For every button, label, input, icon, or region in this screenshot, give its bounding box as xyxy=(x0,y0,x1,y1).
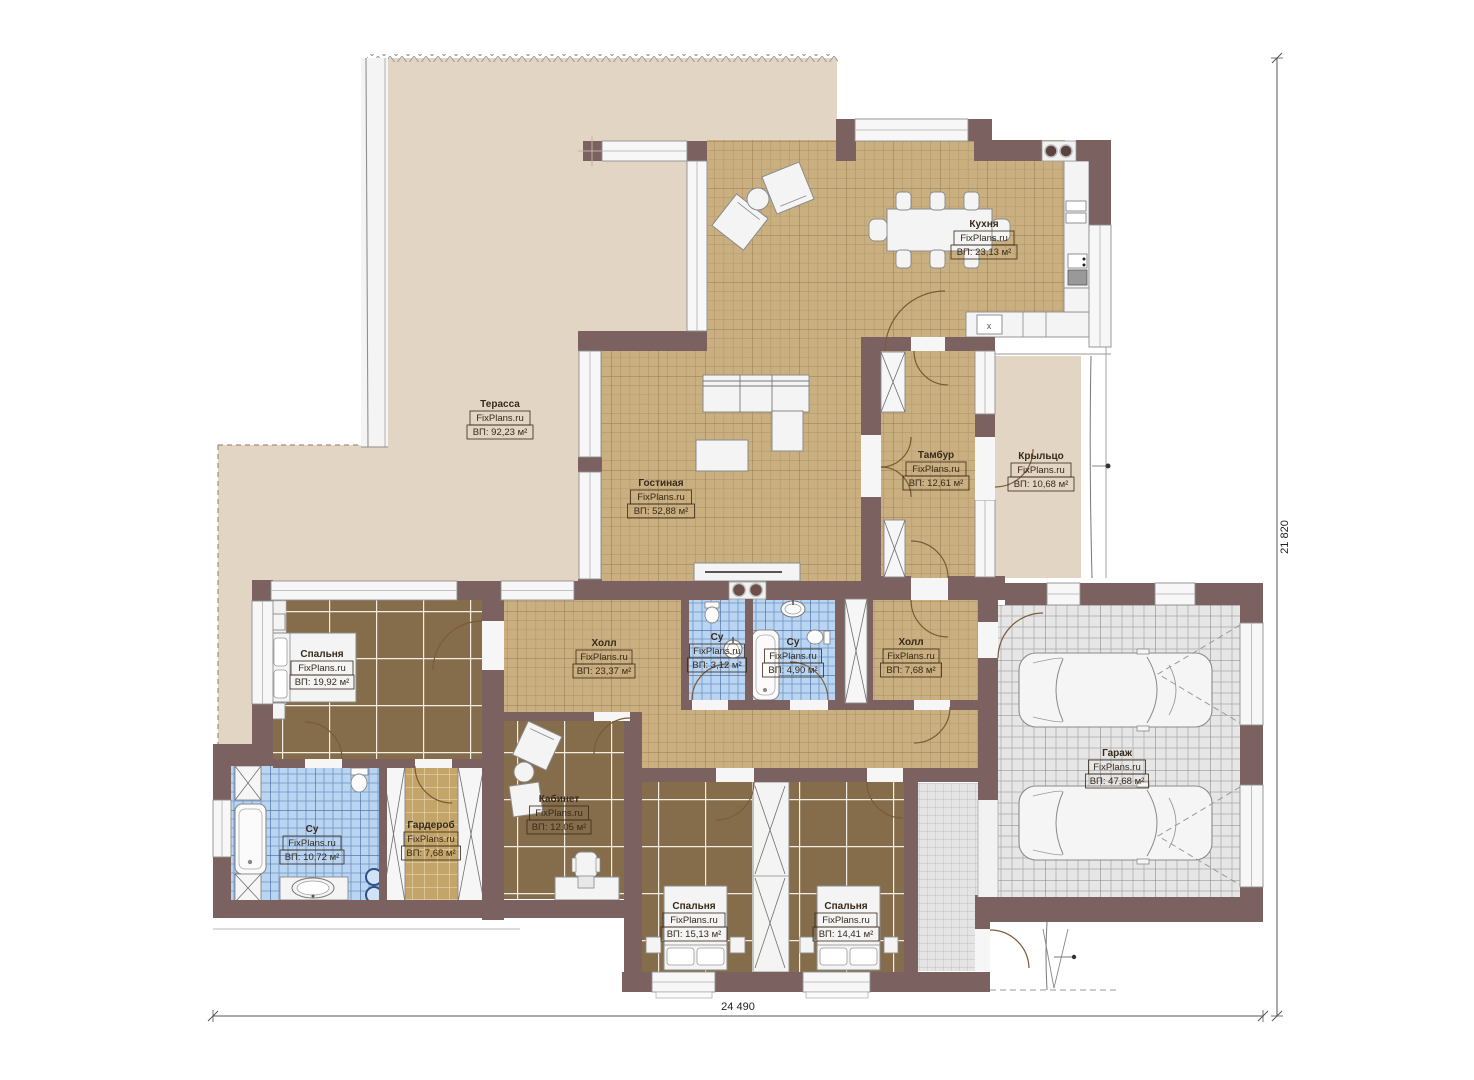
svg-text:Терасса: Терасса xyxy=(480,399,520,410)
svg-text:FixPlans.ru: FixPlans.ru xyxy=(1093,762,1141,773)
svg-text:Тамбур: Тамбур xyxy=(918,449,954,461)
svg-text:FixPlans.ru: FixPlans.ru xyxy=(670,915,718,926)
svg-text:Кабинет: Кабинет xyxy=(539,793,580,805)
svg-text:Гардероб: Гардероб xyxy=(407,819,454,831)
svg-text:FixPlans.ru: FixPlans.ru xyxy=(693,646,741,657)
svg-text:Гараж: Гараж xyxy=(1102,748,1133,759)
svg-text:Су: Су xyxy=(306,824,319,835)
svg-text:ВП: 4,90 м²: ВП: 4,90 м² xyxy=(768,665,817,676)
svg-text:Су: Су xyxy=(787,637,800,648)
svg-text:ВП: 52,88 м²: ВП: 52,88 м² xyxy=(634,506,689,517)
svg-text:FixPlans.ru: FixPlans.ru xyxy=(476,413,524,424)
svg-text:Холл: Холл xyxy=(591,638,616,649)
svg-text:Спальня: Спальня xyxy=(824,901,867,912)
svg-text:x: x xyxy=(987,321,992,331)
svg-text:Холл: Холл xyxy=(898,637,923,648)
svg-text:Гостиная: Гостиная xyxy=(638,478,683,489)
svg-text:FixPlans.ru: FixPlans.ru xyxy=(298,663,346,674)
svg-text:Кухня: Кухня xyxy=(969,219,998,230)
svg-text:FixPlans.ru: FixPlans.ru xyxy=(407,834,455,845)
svg-text:ВП: 15,13 м²: ВП: 15,13 м² xyxy=(667,929,722,940)
svg-text:FixPlans.ru: FixPlans.ru xyxy=(769,651,817,662)
svg-text:ВП: 47,68 м²: ВП: 47,68 м² xyxy=(1090,776,1145,787)
svg-text:ВП: 14,41 м²: ВП: 14,41 м² xyxy=(819,929,874,940)
svg-text:ВП: 3,12 м²: ВП: 3,12 м² xyxy=(692,660,741,671)
svg-text:ВП: 23,37 м²: ВП: 23,37 м² xyxy=(577,666,632,677)
svg-text:ВП: 7,68 м²: ВП: 7,68 м² xyxy=(886,665,935,676)
svg-text:ВП: 92,23 м²: ВП: 92,23 м² xyxy=(473,427,528,438)
svg-text:ВП: 23,13 м²: ВП: 23,13 м² xyxy=(957,247,1012,258)
svg-text:Крыльцо: Крыльцо xyxy=(1018,451,1064,462)
svg-text:ВП: 19,92 м²: ВП: 19,92 м² xyxy=(295,677,350,688)
svg-text:24 490: 24 490 xyxy=(721,1001,755,1013)
svg-text:Спальня: Спальня xyxy=(672,901,715,912)
svg-text:ВП: 10,72 м²: ВП: 10,72 м² xyxy=(285,852,340,863)
svg-text:21 820: 21 820 xyxy=(1279,520,1291,554)
svg-text:FixPlans.ru: FixPlans.ru xyxy=(580,652,628,663)
svg-text:FixPlans.ru: FixPlans.ru xyxy=(288,838,336,849)
svg-text:Спальня: Спальня xyxy=(300,649,343,660)
svg-text:ВП: 10,68 м²: ВП: 10,68 м² xyxy=(1014,479,1069,490)
svg-text:FixPlans.ru: FixPlans.ru xyxy=(960,233,1008,244)
svg-text:FixPlans.ru: FixPlans.ru xyxy=(912,464,960,475)
svg-text:FixPlans.ru: FixPlans.ru xyxy=(535,808,583,819)
svg-text:ВП: 7,68 м²: ВП: 7,68 м² xyxy=(406,848,455,859)
svg-text:FixPlans.ru: FixPlans.ru xyxy=(887,651,935,662)
svg-text:FixPlans.ru: FixPlans.ru xyxy=(637,492,685,503)
svg-text:FixPlans.ru: FixPlans.ru xyxy=(822,915,870,926)
svg-text:FixPlans.ru: FixPlans.ru xyxy=(1017,465,1065,476)
svg-text:Су: Су xyxy=(711,632,724,643)
svg-text:ВП: 12,61 м²: ВП: 12,61 м² xyxy=(909,478,964,489)
svg-text:ВП: 12,05 м²: ВП: 12,05 м² xyxy=(532,822,587,833)
